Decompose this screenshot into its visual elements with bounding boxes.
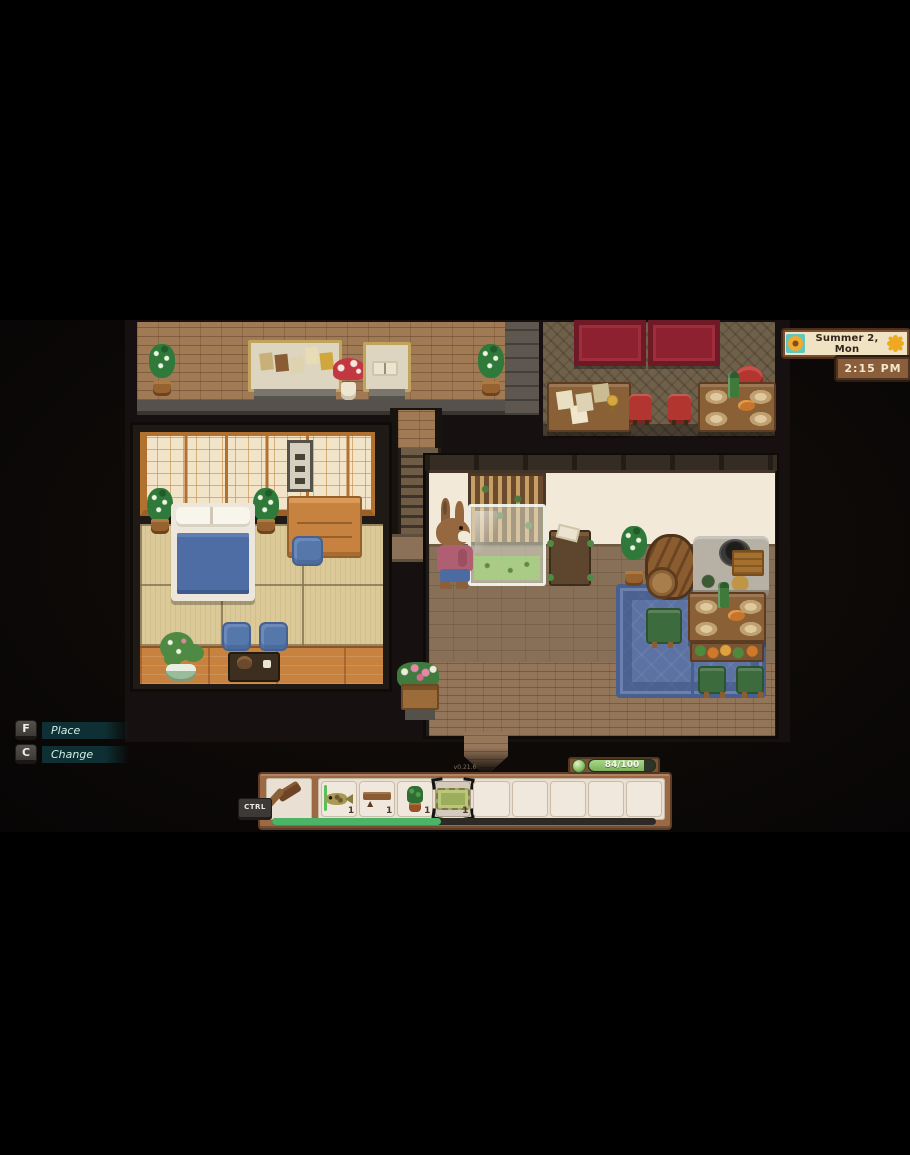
- dining-table-bottom: [688, 592, 766, 642]
- hammer-icon: [274, 784, 304, 814]
- potted-plant-bedroom-left: [146, 488, 174, 534]
- sun-icon: [889, 337, 902, 350]
- planter-shelf: [690, 642, 764, 662]
- tatami-room: [130, 422, 392, 692]
- floor-cushion-2: [222, 622, 251, 651]
- date-panel: Summer 2, Mon: [783, 330, 909, 357]
- wooden-barrel: [645, 534, 697, 600]
- keybind-change: C Change: [15, 744, 129, 764]
- glass-terrarium: [468, 504, 546, 586]
- red-stool-1: [629, 394, 652, 424]
- potted-plant-museum-left: [148, 344, 176, 396]
- museum-floor: [137, 400, 505, 415]
- hotbar: 1 1 1 1: [258, 772, 672, 830]
- hotbar-slot-6[interactable]: [512, 781, 548, 817]
- floor-cushion-3: [259, 622, 288, 651]
- bed: [171, 503, 255, 601]
- energy-panel: 84/100: [568, 757, 660, 774]
- keybind-place: F Place: [15, 720, 129, 740]
- key-f-badge: F: [15, 720, 37, 740]
- hotbar-slot-8[interactable]: [588, 781, 624, 817]
- potted-plant-icon: [406, 786, 424, 812]
- fish-icon: [325, 791, 353, 807]
- keybind-place-label: Place: [42, 722, 129, 739]
- hotbar-slots: 1 1 1 1: [318, 778, 665, 820]
- tea-tray: [228, 652, 280, 682]
- hotbar-slot-9[interactable]: [626, 781, 662, 817]
- game-viewport: Summer 2, Mon 2:15 PM F Place C Change 8…: [0, 320, 910, 832]
- hotbar-slot-2[interactable]: 1: [359, 781, 395, 817]
- hanging-scroll: [287, 440, 313, 492]
- rabbit-sweater: [437, 545, 473, 571]
- wall-beam: [425, 455, 777, 471]
- mushroom-statue: [333, 358, 365, 400]
- potted-plant-museum-right: [477, 344, 505, 396]
- rabbit-legs: [440, 569, 470, 582]
- tool-slot[interactable]: [266, 778, 312, 820]
- sunflower-icon: [786, 334, 805, 353]
- ctrl-key-badge: CTRL: [238, 798, 272, 818]
- energy-orb-icon: [572, 759, 586, 773]
- green-stool-1: [646, 608, 682, 644]
- keybind-change-label: Change: [42, 746, 129, 763]
- date-text: Summer 2, Mon: [807, 333, 887, 355]
- main-hall[interactable]: [423, 453, 779, 739]
- energy-value: 84/100: [589, 760, 655, 771]
- red-stool-2: [668, 394, 691, 424]
- floor-cushion-1: [292, 536, 323, 566]
- player-character-rabbit: [433, 498, 478, 590]
- hotbar-slot-4-selected[interactable]: 1: [435, 781, 471, 817]
- game-window: Summer 2, Mon 2:15 PM F Place C Change 8…: [0, 0, 910, 1155]
- stair-top-brick: [398, 410, 435, 448]
- scroll-table: [547, 382, 631, 432]
- potted-plant-bedroom-right: [252, 488, 280, 534]
- item-count: 1: [462, 806, 468, 816]
- hotbar-slot-3[interactable]: 1: [397, 781, 433, 817]
- green-stool-3: [736, 666, 764, 694]
- hotbar-progress-fill: [272, 818, 441, 825]
- item-count: 1: [348, 806, 354, 816]
- time-panel: 2:15 PM: [836, 357, 910, 380]
- bonsai-plant: [158, 632, 206, 682]
- hotbar-progress-track: [272, 818, 656, 825]
- flower-planter: [397, 662, 439, 722]
- stone-wall-block: [505, 322, 539, 415]
- writing-desk: [549, 530, 591, 586]
- red-wall-tapestry-right: [648, 320, 720, 366]
- display-case-artifacts: [248, 340, 342, 392]
- hotbar-slot-1[interactable]: 1: [321, 781, 357, 817]
- rabbit-head: [436, 518, 470, 547]
- key-c-badge: C: [15, 744, 37, 764]
- dining-table-top: [698, 382, 776, 432]
- hotbar-slot-7[interactable]: [550, 781, 586, 817]
- energy-bar: 84/100: [588, 759, 656, 772]
- item-count: 1: [386, 806, 392, 816]
- green-stool-2: [698, 666, 726, 694]
- kitchen-counter: [693, 536, 769, 596]
- hotbar-slot-5[interactable]: [473, 781, 509, 817]
- item-count: 1: [424, 806, 430, 816]
- display-case-book: [363, 342, 411, 392]
- red-wall-tapestry-left: [574, 320, 646, 366]
